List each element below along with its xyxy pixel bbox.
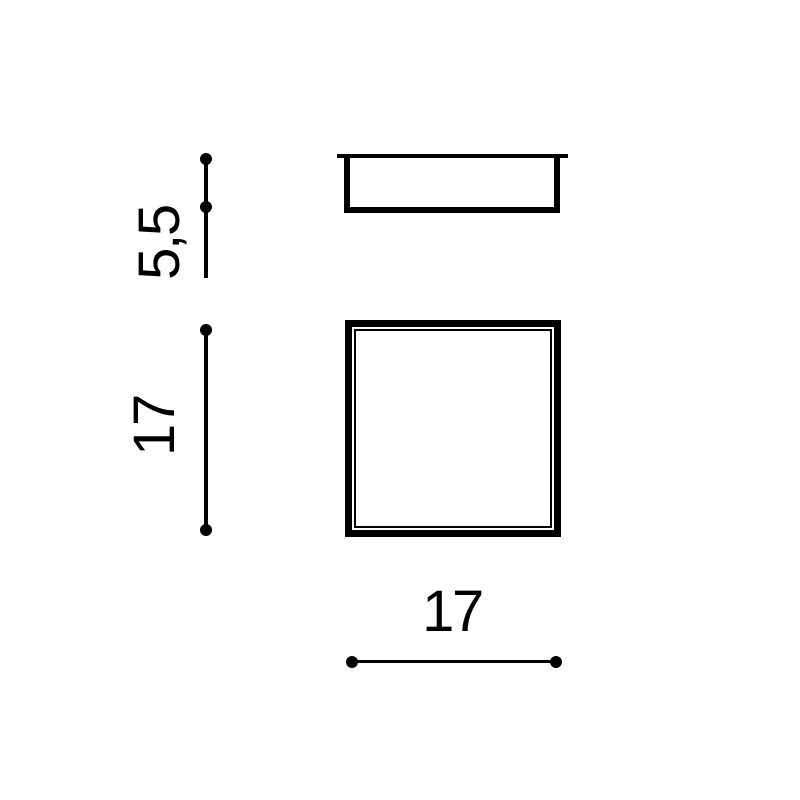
width-dimension-line [352, 660, 556, 663]
side-dimension-label: 17 [126, 396, 184, 456]
front-view-outer-frame [345, 320, 561, 537]
width-dimension-label: 17 [422, 583, 482, 641]
side-dimension-dot-top [200, 324, 212, 336]
front-view-inner-line [354, 329, 552, 528]
side-view-body [344, 154, 560, 213]
height-dimension-dot-top [200, 153, 212, 165]
width-dimension-dot-left [346, 656, 358, 668]
side-view-flange [337, 154, 568, 158]
drawing-canvas: 5,5 17 17 [0, 0, 800, 800]
height-dimension-dot-bottom [200, 201, 212, 213]
side-dimension-dot-bottom [200, 524, 212, 536]
side-dimension-line [204, 328, 208, 532]
width-dimension-dot-right [550, 656, 562, 668]
height-dimension-label: 5,5 [131, 206, 189, 280]
height-dimension-line [204, 156, 208, 278]
